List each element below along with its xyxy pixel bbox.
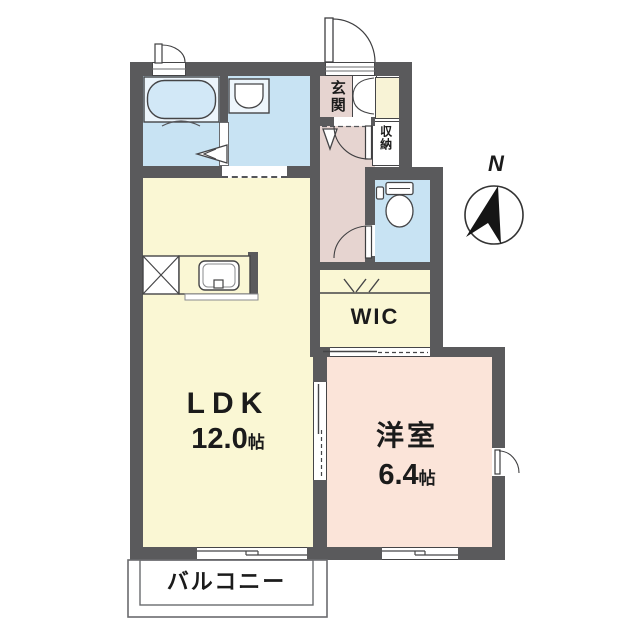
compass-label: N (478, 152, 514, 175)
wall-top (130, 62, 152, 76)
western-room-size-value: 6.4 (378, 459, 418, 491)
bathroom-floor (143, 76, 220, 166)
washroom-floor (228, 76, 310, 166)
wall-bottom (307, 547, 382, 560)
western-room-label: 洋室 (327, 421, 487, 450)
toilet-door-opening (365, 225, 375, 256)
wic-sliding-door (330, 347, 430, 357)
ldk-floor (143, 178, 313, 547)
ldk-label: LDK (143, 388, 313, 420)
shoe-cabinet-door-area (352, 75, 377, 119)
wall-kitchen-stub (248, 252, 258, 300)
wall-washroom-bottom (143, 166, 222, 178)
wall-washroom-bottom (287, 166, 310, 178)
western-room-size-unit: 帖 (419, 469, 436, 488)
floor-plan: N 玄関 収納 WIC LDK 12.0帖 洋室 6.4帖 バルコニー (0, 0, 640, 640)
entrance-door-sill (325, 62, 375, 76)
ldk-size: 12.0帖 (143, 424, 313, 454)
wall-bath-divider (220, 76, 228, 122)
wall-bottom (130, 547, 197, 560)
wall-entrance-step (320, 117, 334, 126)
wall-left (130, 62, 143, 560)
wall-toilet-left (365, 256, 375, 262)
toilet-floor (375, 180, 430, 262)
western-room-size: 6.4帖 (327, 460, 487, 490)
western-room-exterior-door-opening (492, 448, 505, 476)
wall-toilet-left (365, 178, 375, 225)
shoe-cabinet (375, 77, 401, 119)
ldk-western-sliding-door (313, 382, 327, 480)
ldk-size-value: 12.0 (191, 423, 247, 455)
western-room-window (382, 547, 458, 560)
wall-hall-bottom (310, 262, 443, 270)
wall-toilet-right (430, 167, 443, 270)
wall-bottom (458, 547, 505, 560)
balcony-label: バルコニー (140, 570, 313, 593)
wall-wic-right (430, 262, 443, 357)
wic-label: WIC (320, 305, 430, 328)
western-room-floor (327, 357, 492, 547)
wall-western-right (492, 347, 505, 448)
wall-ldk-western (313, 347, 327, 382)
wall-top (186, 62, 325, 76)
entrance-label: 玄関 (329, 80, 345, 114)
storage-label: 収納 (379, 125, 392, 151)
compass-icon (465, 186, 523, 244)
bathroom-window (152, 62, 186, 76)
entrance-hall-door-opening (334, 117, 371, 126)
wall-center-vertical (310, 76, 320, 347)
wall-entrance-step (371, 117, 375, 126)
wall-right-upper (399, 62, 412, 180)
ldk-size-unit: 帖 (248, 433, 265, 452)
washroom-ldk-opening (222, 166, 287, 178)
wall-ldk-western (313, 480, 327, 547)
balcony-sliding-window-ldk (197, 547, 307, 560)
bath-folding-door-opening (219, 122, 229, 166)
